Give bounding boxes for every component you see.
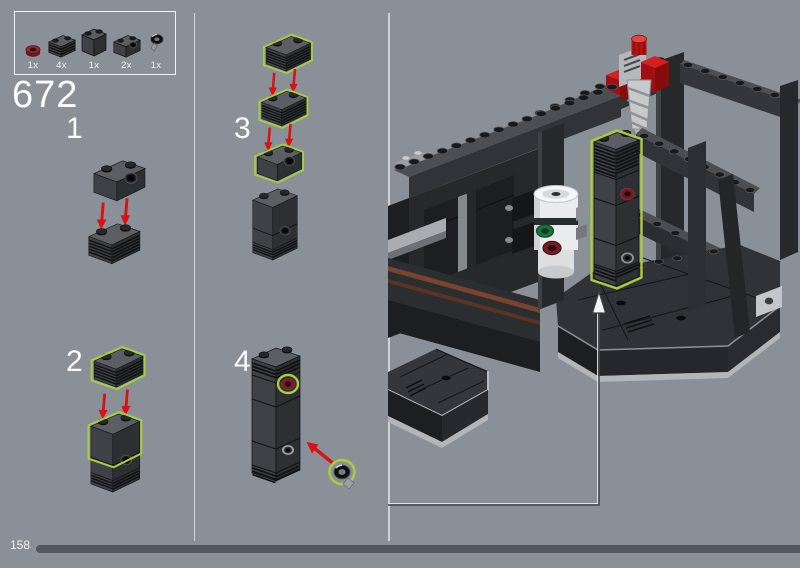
part-item: 1x <box>80 23 108 71</box>
part-count-label: 1x <box>89 60 100 71</box>
part-item: 1x <box>145 27 167 71</box>
part-count-label: 1x <box>151 60 162 71</box>
brick-stack <box>88 412 141 492</box>
grille-brick-highlighted <box>264 35 312 74</box>
technic-brick <box>94 161 145 201</box>
grille-brick <box>89 224 140 264</box>
part-icon-dark-red-round-plate <box>23 27 43 59</box>
grille-brick-highlighted <box>92 347 145 389</box>
part-icon-black-round-plate <box>145 27 167 59</box>
substep-4-diagram <box>222 340 382 510</box>
progress-bar <box>36 545 800 553</box>
grille-brick-highlighted <box>259 89 307 128</box>
part-icon-1x2x2-brick <box>80 23 108 59</box>
part-count-label: 4x <box>56 60 67 71</box>
part-icon-technic-brick <box>111 27 143 59</box>
lego-instruction-page: 1x 4x 1x <box>0 0 800 568</box>
brick-stack <box>253 189 297 260</box>
column-divider <box>194 13 196 541</box>
model-render <box>388 0 800 568</box>
black-round-plate-highlighted <box>330 460 355 489</box>
step-number: 672 <box>12 74 78 117</box>
substep-1-diagram <box>58 154 186 268</box>
part-icon-grille-brick <box>46 27 78 59</box>
model-highlighted-tower <box>592 130 642 288</box>
brick-tower <box>252 347 300 483</box>
parts-callout-box: 1x 4x 1x <box>14 11 176 75</box>
technic-brick-highlighted <box>255 144 303 183</box>
part-item: 2x <box>111 27 143 71</box>
part-item: 4x <box>46 27 78 71</box>
substep-3-diagram <box>232 32 358 263</box>
substep-2-diagram <box>60 344 182 497</box>
part-item: 1x <box>23 27 43 71</box>
page-number: 158 <box>10 538 30 552</box>
model-support-post <box>688 141 706 312</box>
substep-1-label: 1 <box>66 112 83 146</box>
arrow-icon <box>307 442 335 464</box>
part-count-label: 1x <box>28 60 39 71</box>
model-left-platform <box>388 349 488 448</box>
part-count-label: 2x <box>121 60 132 71</box>
